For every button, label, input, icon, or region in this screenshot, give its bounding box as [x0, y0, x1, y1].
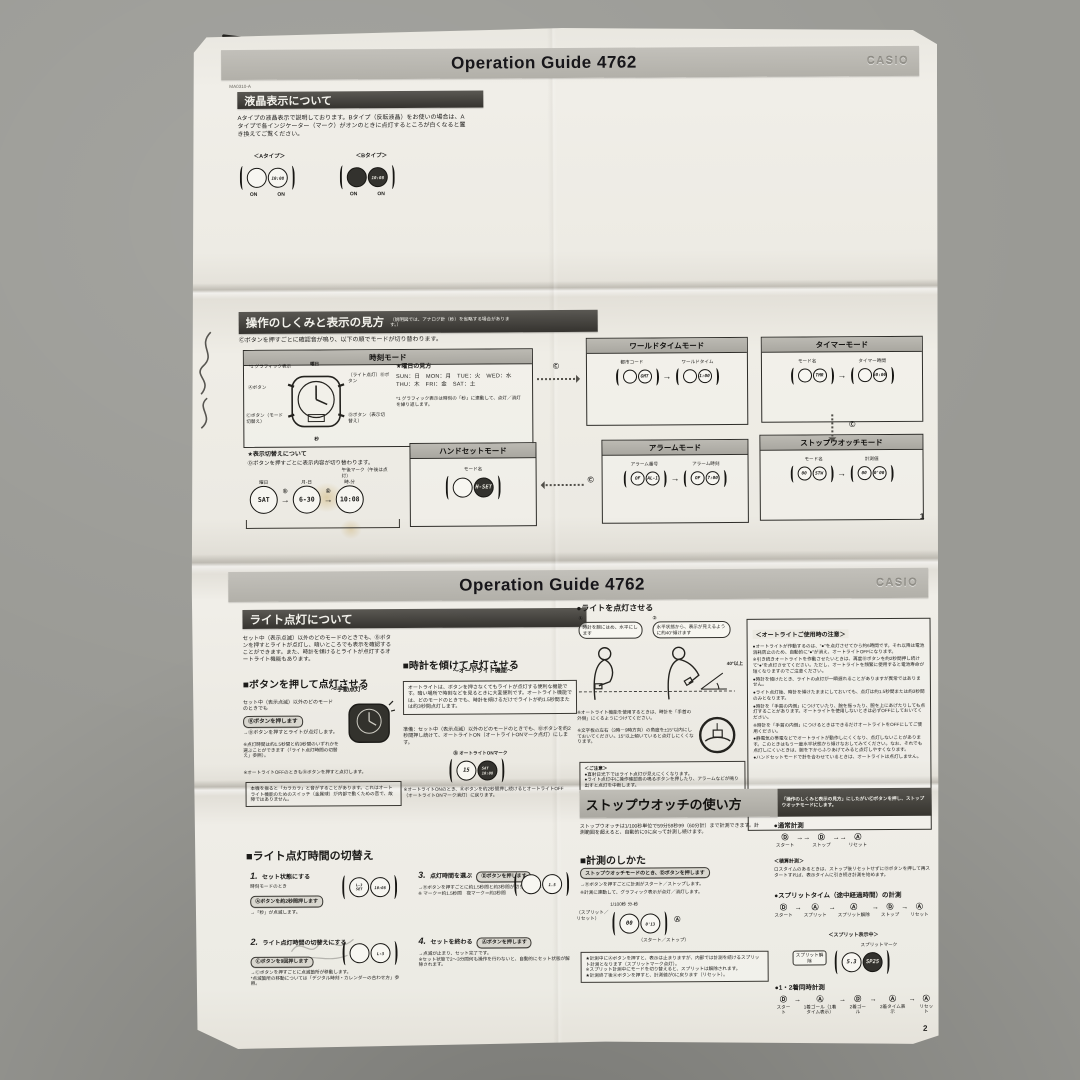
split-watch-icon: 5.3SP25 — [835, 950, 890, 974]
warning-item: ●ライト点灯後、時計を傾けたままにしておいても、点灯は約1.5秒間または約3秒間… — [753, 689, 925, 702]
warning-item: ●ハンドセットモードで針を合わせているときは、オートライトは点灯しません。 — [753, 754, 925, 761]
light-duration-title: ■ライト点灯時間の切替え — [246, 847, 374, 864]
lcd-section-body: Aタイプの液晶表示で説明しております。Bタイプ（反転液晶）をお使いの場合は、Aタ… — [237, 115, 469, 140]
day-guide-line1: SUN：日 MON：月 TUE：火 WED：水 — [396, 373, 512, 381]
on-label: ON — [277, 192, 285, 198]
watch-icon: OFAL-1 — [624, 470, 667, 487]
c-button-mark: Ⓒ — [588, 478, 594, 486]
split-release-tag: スプリット解除 — [793, 950, 827, 966]
step-button-box: Ⓐボタンを押します — [477, 937, 532, 949]
on-label: ON — [250, 192, 258, 198]
flow-button: Ⓐ — [804, 904, 827, 911]
measure-how-title: ■計測のしかた — [580, 852, 646, 867]
mode-arrow-icon — [537, 378, 579, 380]
caution-item: ●ライト点灯中に操作確認音の鳴るボタンを押したり、アラームなどが鳴り出すと点灯を… — [584, 776, 740, 788]
flow-label: 1着ゴール（1着タイム表示） — [803, 1004, 837, 1015]
warning-item: ●静電気の帯電などでオートライトが動作しにくくなり、点灯しないことがあります。こ… — [753, 735, 925, 753]
unit-label: 1/100秒 分-秒 — [610, 902, 638, 908]
watch-icon: TMR — [790, 367, 833, 384]
watch-icon: 000'00 — [850, 465, 893, 482]
watch-icon: L-3 — [342, 941, 397, 965]
alarm-mode-box: アラームモード アラーム番号 アラーム時刻 OFAL-1 → OF7:00 — [601, 439, 749, 524]
display-switch-flow: 曜日 SAT Ⓓ→ 月-日 6-30 Ⓓ→ 時-分 10:08 — [250, 479, 364, 513]
seconds-label: 秒 — [314, 437, 319, 443]
flow-label: スタート — [776, 843, 794, 848]
flow-button: Ⓓ — [775, 997, 792, 1004]
person-figures-icon — [577, 639, 737, 706]
flow-button: Ⓓ — [774, 905, 792, 912]
flow-label: ストップ — [812, 842, 830, 847]
handset-mode-box: ハンドセットモード モード名 H-SET — [409, 442, 537, 527]
watch-icon: 1.5 — [514, 872, 569, 896]
manual-light-result: →Ⓑボタンを押すとライトが点灯します。 — [243, 729, 339, 736]
light-intro: セット中（表示点滅）以外のどのモードのときでも、Ⓑボタンを押すとライトが点灯し、… — [243, 635, 395, 664]
day-guide-line2: THU：木 FRI：金 SAT：土 — [396, 382, 476, 390]
timer-time-label: タイマー時間 — [858, 358, 886, 364]
manual-light-note2: ※オートライトOFFのときもⒷボタンを押すと点灯します。 — [243, 769, 393, 776]
light-section-header: ライト点灯について — [242, 608, 586, 629]
day-guide-title: ★曜日の見方 — [396, 364, 431, 372]
autolight-on-mark-label: Ⓑ オートライトONマーク — [453, 750, 507, 756]
button-a-label: Ⓐボタン — [248, 385, 266, 391]
split-title: ●スプリットタイム（途中経過時間）の計測 — [774, 892, 901, 901]
button-d-label: Ⓓボタン（表示切替え） — [348, 412, 388, 424]
flow-label: 2着タイム表示 — [879, 1004, 907, 1015]
type-a-label: ＜Aタイプ＞ — [254, 154, 286, 161]
button-c-label: Ⓒボタン（モード切替え） — [246, 413, 286, 425]
measure-button-box: ストップウオッチモードのとき、Ⓓボタンを押します — [580, 867, 710, 879]
step-result: →点滅が止まり、セット完了です。 ※セット状態で2～3分間何も操作を行わないと、… — [419, 950, 571, 968]
flow-label: スプリット — [804, 912, 827, 917]
flow-label: 時-分 — [336, 479, 364, 485]
step-title: 点灯時間を選ぶ — [430, 874, 472, 880]
flow-button: Ⓓ — [812, 834, 830, 841]
casio-logo: CASIO — [867, 55, 919, 67]
step-button-box: Ⓐボタンを約2秒間押します — [250, 896, 323, 908]
flow-label: ストップ — [881, 912, 899, 917]
normal-measure-title: ●通常計測 — [774, 823, 804, 832]
a-button-mark: Ⓐ — [674, 917, 680, 925]
measure-note: ※計測に連動して、グラフィック表示が点灯／消灯します。 — [580, 889, 764, 896]
mode-name-label: モード名 — [411, 466, 536, 472]
step-result: →「秒」が点滅します。 — [250, 909, 400, 916]
watch-icon: L-3SET10:08 — [342, 875, 397, 899]
operation-section-note: （説明図では、アナログ針（秒）を省略する場合があります。） — [390, 316, 510, 328]
pen-scribble — [191, 328, 224, 448]
alarm-mode-title: アラームモード — [602, 440, 747, 456]
display-switch-title: ★表示切替えについて — [247, 452, 306, 460]
lcd-section-title: 液晶表示について — [244, 92, 332, 109]
watch-display: SAT — [250, 485, 278, 513]
page1-number: 1 — [920, 512, 925, 521]
lit-watch-icon — [343, 699, 395, 747]
page2-number: 2 — [923, 1024, 928, 1033]
watch-icon: 1:00 — [675, 368, 718, 385]
watch-icon: GMT — [615, 368, 658, 385]
caution-box: ＜ご注意＞ ●直射日光下ではライト点灯が見えにくくなります。 ●ライト点灯中に操… — [579, 761, 745, 793]
auto-light-prep: 準備：セット中（表示点滅）以外のどのモードのときでも、Ⓑボタンを約2秒間押し続け… — [403, 726, 571, 746]
operation-section-header: 操作のしくみと表示の見方 （説明図では、アナログ針（秒）を省略する場合があります… — [239, 310, 598, 334]
tilt-angle-label: 40°以上 — [727, 661, 743, 667]
press-b-button-box: Ⓑボタンを押します — [243, 716, 303, 729]
on-label: ON — [377, 191, 385, 197]
accumulate-title: ＜積算計測＞ — [774, 859, 804, 866]
warning-item: ※引き続きオートライトを作動させたいときは、再度Ⓑボタンを約2秒間押し続けて"●… — [753, 656, 925, 674]
step-title: セットを終わる — [430, 940, 472, 946]
watch-display: 10:08 — [336, 485, 364, 513]
warning-title: ＜オートライトご使用時の注意＞ — [753, 629, 849, 639]
tilt-note-1: ※オートライト機能を使用するときは、時計を「手首の外側」にくるようにつけてくださ… — [577, 709, 695, 721]
flow-button: Ⓐ — [879, 996, 907, 1003]
type-a-watch-icon: 10:08 ON ON — [240, 166, 295, 199]
split-flow: Ⓓスタート → Ⓐスプリット → Ⓐスプリット解除 → Ⓓストップ → Ⓐリセッ… — [774, 904, 928, 918]
casio-logo: CASIO — [876, 577, 928, 589]
duration-step-4: 4. セットを終わる Ⓐボタンを押します →点滅が止まり、セット完了です。 ※セ… — [418, 930, 570, 968]
c-button-mark: Ⓒ — [553, 364, 559, 372]
flow-button: Ⓐ — [918, 996, 935, 1003]
stopwatch-intro: ストップウオッチは1/100秒単位で59分59秒99（60分計）まで計測できます… — [580, 823, 760, 837]
flow-button: Ⓐ — [910, 904, 928, 911]
mode-arrow-icon — [831, 414, 833, 440]
mode-arrow-icon — [542, 484, 584, 486]
warning-item: ●時計を傾けたとき、ライトの点灯が一瞬遅れることがありますが異常ではありません。 — [753, 675, 925, 688]
flow-label: 月-日 — [293, 479, 321, 485]
manual-light-note1: ※点灯時間は約1.5秒間と約3秒間のいずれかを選ぶことができます（「ライト点灯時… — [243, 741, 339, 759]
world-time-mode-title: ワールドタイムモード — [587, 338, 747, 354]
split-reset-label: （スプリット／リセット） — [576, 910, 610, 922]
step-number: 1. — [250, 871, 258, 881]
stopwatch-watch-icon: 000'13 — [612, 911, 667, 935]
manual-light-condition: セット中（表示点滅）以外のどのモードのときでも — [243, 699, 333, 712]
flow-button: Ⓓ — [881, 904, 899, 911]
time-mode-box: 時刻モード *1 グラフィック表示 曜日 Ⓐボタン （ライト点灯）Ⓑボタン Ⓒボ… — [243, 348, 534, 448]
world-time-label: ワールドタイム — [681, 359, 713, 365]
timer-mode-title: タイマーモード — [762, 337, 922, 353]
watch-icon: H-SET — [446, 475, 501, 499]
stopwatch-section-header: ストップウオッチの使い方 「操作のしくみと表示の見方」にしたがいⒸボタンを押し、… — [580, 788, 932, 818]
auto-light-desc-box: オートライトは、ボタンを押さなくてもライトが点灯する便利な機能です。暗い場所で時… — [403, 680, 577, 715]
accumulate-body: ロスタイムのあるときは、ストップ後リセットせずにⒹボタンを押して再スタートすれば… — [774, 866, 932, 878]
flow-label: スタート — [774, 913, 792, 918]
flow-label: リセット — [849, 842, 867, 847]
measure-result: →Ⓓボタンを押すごとに計測がスタート／ストップします。 — [580, 881, 764, 888]
analog-watch-icon — [286, 370, 346, 432]
stopwatch-section-title: ストップウオッチの使い方 — [586, 793, 742, 813]
alarm-time-label: アラーム時刻 — [692, 461, 719, 467]
day-label: 曜日 — [310, 361, 319, 367]
flow-button: Ⓓ — [776, 835, 794, 842]
city-code-label: 都市コード — [620, 360, 643, 366]
dual-measure-flow: Ⓓスタート → Ⓐ1着ゴール（1着タイム表示） → Ⓓ2着ゴール → Ⓐ2着タイ… — [775, 996, 935, 1016]
light-section-title: ライト点灯について — [249, 611, 352, 628]
handset-mode-title: ハンドセットモード — [410, 443, 535, 459]
stopwatch-section-note: 「操作のしくみと表示の見方」にしたがいⒸボタンを押し、ストップウオッチモードにし… — [782, 796, 928, 808]
dual-measure-title: ●1・2着同時計測 — [775, 984, 825, 993]
tilt-title: ●ライトを点灯させる — [576, 603, 653, 614]
speech-bubble-2: 水平状態から、表示が見えるように約40°傾けます — [653, 621, 731, 639]
lcd-section-header: 液晶表示について — [237, 90, 483, 109]
step-title: ライト点灯時間の切替えにする — [262, 940, 346, 947]
warning-item: ●オートライトが作動するのは、"●"を点灯させてから約6時間です。それ以降は電池… — [753, 643, 925, 656]
step-button-box: Ⓒボタンを9回押します — [251, 956, 314, 968]
operation-section-title: 操作のしくみと表示の見方 — [246, 314, 385, 331]
watch-icon: 60:00 — [850, 367, 893, 384]
auto-light-off-note: ※オートライトONのとき、Ⓑボタンを約2秒間押し続けるとオートライトOFF（オー… — [404, 786, 572, 798]
page2-title: Operation Guide 4762 — [228, 573, 876, 597]
split-display-title: ＜スプリット表示中＞ — [828, 932, 878, 939]
step-number: 2. — [250, 937, 258, 947]
flow-return-line — [246, 519, 400, 529]
timer-mode-box: タイマーモード モード名 タイマー時間 TMR → 60:00 — [761, 336, 924, 423]
world-time-mode-box: ワールドタイムモード 都市コード ワールドタイム GMT → 1:00 — [586, 337, 749, 426]
measured-value-label: 計測値 — [865, 456, 879, 462]
tilt-note-2: ※文字板の左右（3時－9時方向）の角度を±15°以内にしておいてください。15°… — [577, 727, 695, 745]
type-b-label: ＜Bタイプ＞ — [356, 153, 388, 160]
watch-icon: OF7:00 — [684, 470, 727, 487]
step-result: →Ⓒボタンを押すごとに点滅箇所が移動します。 *点滅箇所の移動については「デジタ… — [251, 969, 401, 987]
watch-icon: 00STW — [790, 465, 833, 482]
manual-paper: Operation Guide 4762 CASIO MA0310-A 液晶表示… — [187, 24, 943, 1051]
pm-mark-label: 午後マーク（午後は点灯） — [342, 467, 394, 479]
stopwatch-mode-box: ストップウオッチモード モード名 計測値 00STW → 000'00 — [759, 434, 924, 521]
wrist-angle-icon — [697, 715, 737, 755]
flow-label: 2着ゴール — [848, 1004, 868, 1015]
flow-label: スプリット解除 — [838, 912, 870, 917]
flow-button: Ⓐ — [849, 834, 867, 841]
mode-name-label: モード名 — [798, 358, 816, 364]
doc-code: MA0310-A — [229, 84, 251, 90]
mode-name-label: モード名 — [804, 456, 822, 462]
flow-button: Ⓓ — [848, 996, 868, 1003]
warning-item: ●時計を「手首の内側」につけていたり、腕を振ったり、腕を上にあげたりしても点灯す… — [753, 702, 925, 720]
operation-lead: Ⓒボタンを押すごとに確認音が鳴り、以下の順でモードが切り替わります。 — [239, 336, 539, 346]
type-b-watch-icon: 10:08 ON ON — [340, 165, 395, 198]
stopwatch-mode-title: ストップウオッチモード — [760, 435, 922, 451]
step1-mark: ① — [578, 616, 582, 622]
page1-title: Operation Guide 4762 — [221, 51, 867, 75]
auto-light-subtitle: ～オートライト機能～ — [453, 668, 513, 676]
manual-light-subtitle: ～手動点灯～ — [331, 687, 367, 695]
warning-item: ※時計を「手首の内側」につけるときはできるだけオートライトをOFFにしてご使用く… — [753, 722, 925, 735]
flow-button: Ⓐ — [803, 996, 837, 1003]
normal-measure-flow: Ⓓスタート →→ Ⓓストップ →→ Ⓐリセット — [776, 834, 867, 848]
page1-header-bar: Operation Guide 4762 CASIO — [221, 46, 919, 80]
flow-label: リセット — [918, 1004, 935, 1015]
graphic-display-label: *1 グラフィック表示 — [249, 364, 291, 370]
button-b-label: （ライト点灯）Ⓑボタン — [348, 372, 390, 384]
watch-display: 6-30 — [293, 485, 321, 513]
step-number: 3. — [418, 870, 426, 880]
step-number: 4. — [418, 936, 426, 946]
split-note-box: ★計測中にⒶボタンを押すと、表示は止まりますが、内部では計測を続けるスプリット計… — [581, 951, 769, 983]
flow-label: リセット — [910, 912, 928, 917]
split-mark-label: スプリットマーク — [860, 942, 897, 948]
autolight-on-watch-icon: 15SAT10:08 — [449, 758, 504, 782]
on-label: ON — [350, 191, 358, 197]
speech-bubble-1: 時計を腕にはめ、水平にします — [579, 622, 643, 640]
flow-label: 曜日 — [250, 480, 278, 486]
alarm-number-label: アラーム番号 — [631, 461, 658, 467]
flow-button: Ⓐ — [838, 904, 870, 911]
step2-mark: ② — [652, 615, 656, 621]
page2-header-bar: Operation Guide 4762 CASIO — [228, 568, 928, 602]
flow-label: スタート — [775, 1005, 792, 1016]
graphic-footnote: *1 グラフィック表示は時刻の「秒」に連動して、点灯／消灯を繰り返します。 — [396, 395, 524, 407]
step-title: セット状態にする — [262, 875, 310, 881]
start-stop-label: （スタート／ストップ） — [638, 937, 689, 943]
c-button-mark: Ⓒ — [849, 422, 855, 430]
fold-crease — [188, 279, 938, 300]
rattle-note-box: 本機を振ると「カラカラ」と音がすることがあります。これはオートライト機能のための… — [245, 781, 401, 807]
